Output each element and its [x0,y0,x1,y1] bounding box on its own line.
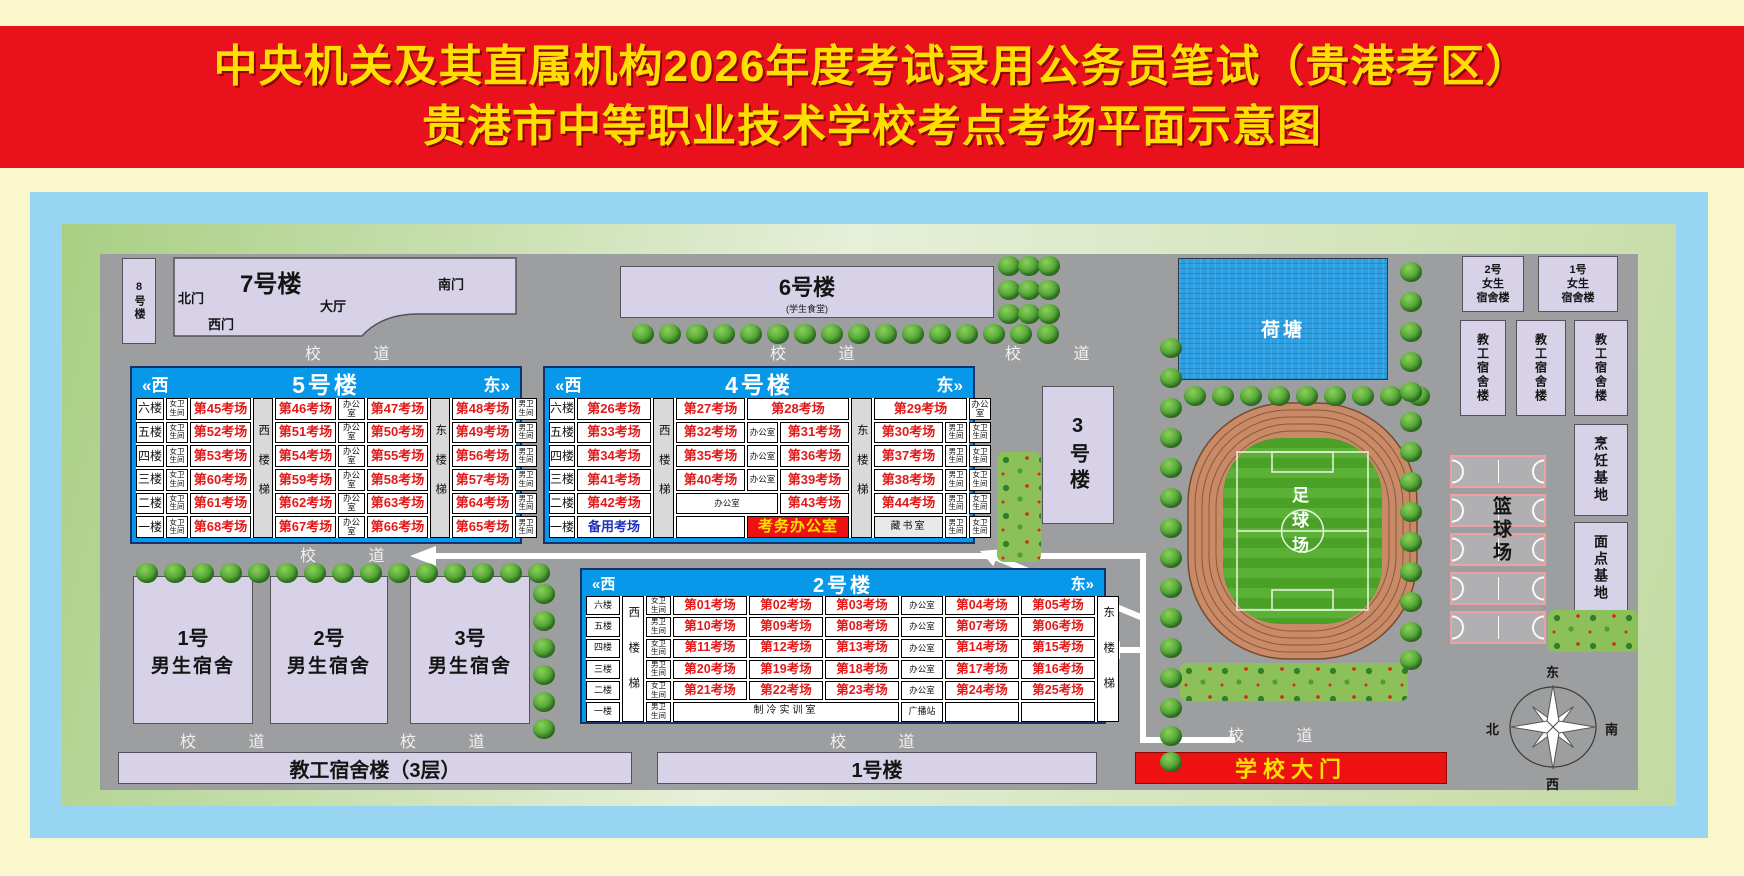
tree-icon [794,324,816,344]
b5-cell-room: 第66考场 [367,516,428,538]
b4-cell-room: 第37考场 [874,445,943,467]
b2-cell-room: 第22考场 [749,681,823,700]
b2-cell-floor: 六楼 [586,596,620,615]
tree-icon [983,324,1005,344]
tree-icon [388,563,410,583]
tree-icon [1400,622,1422,642]
tree-icon [1018,280,1040,300]
road-label: 校 道 [180,728,288,752]
building-4-name: 4号楼 [725,366,793,400]
building-5-name: 5号楼 [292,366,360,400]
b2-cell-room: 第11考场 [673,639,747,658]
b2-cell-room: 第10考场 [673,617,747,636]
b5-cell-room: 第61考场 [190,493,251,515]
title-line-2: 贵港市中等职业技术学校考点考场平面示意图 [0,97,1744,157]
b2-cell-floor: 二楼 [586,681,620,700]
tree-icon [767,324,789,344]
tree-icon [1160,726,1182,746]
tree-icon [1400,592,1422,612]
b4-cell-room: 第38考场 [874,469,943,491]
tree-icon [740,324,762,344]
building-1-bar: 1号楼 [657,752,1097,784]
building-2-grid: 西楼梯东楼梯六楼女卫生间第01考场第02考场第03考场办公室第04考场第05考场… [586,596,1100,722]
b5-cell-wc: 女卫生间 [166,422,188,444]
building-6: 6号楼 (学生食堂) [620,266,994,318]
road-label: 校 道 [770,340,878,364]
female-dorm-1: 1号 女生 宿舍楼 [1538,256,1618,312]
b2-cell-room: 第16考场 [1021,660,1095,679]
b2-cell-room: 第24考场 [945,681,1019,700]
b2-cell-room: 第08考场 [825,617,899,636]
b5-cell-floor: 五楼 [136,422,164,444]
b4-cell-office: 办公室 [747,469,778,491]
b5-cell-room: 第68考场 [190,516,251,538]
b4-cell-floor: 五楼 [549,422,575,444]
tree-icon [1380,386,1402,406]
b4-cell-floor: 四楼 [549,445,575,467]
east-marker: 东» [937,371,963,396]
b2-cell-room: 第09考场 [749,617,823,636]
b4-cell-room: 第33考场 [577,422,651,444]
b5-cell-floor: 四楼 [136,445,164,467]
b4-cell-room: 第32考场 [676,422,745,444]
female-dorm-line2: 女生 [1482,277,1504,291]
tree-icon [1296,386,1318,406]
compass-east-label: 东 [1546,662,1559,681]
title-line-1: 中央机关及其直属机构2026年度考试录用公务员笔试（贵港考区） [0,37,1744,97]
tree-icon [1010,324,1032,344]
b5-cell-wc: 男卫生间 [515,445,537,467]
tree-icon [1240,386,1262,406]
building-7-label: 7号楼 [240,264,301,299]
tree-icon [220,563,242,583]
tree-icon [533,584,555,604]
b4-cell-reserve: 备用考场 [577,516,651,538]
b4-cell-room: 第41考场 [577,469,651,491]
b5-cell-room: 第60考场 [190,469,251,491]
tree-icon [533,638,555,658]
tree-icon [1160,668,1182,688]
tree-icon [998,256,1020,276]
female-dorm-2-no: 2号 [1484,263,1501,277]
b4-cell-room: 第44考场 [874,493,943,515]
building-7-hall: 大厅 [320,296,346,315]
b5-cell-room: 第56考场 [452,445,513,467]
b4-cell-wc: 男卫生间 [945,445,967,467]
tree-icon [248,563,270,583]
tree-icon [686,324,708,344]
west-marker: «西 [555,371,581,396]
building-7-north-gate: 北门 [178,288,204,307]
b4-cell-wc: 男卫生间 [945,493,967,515]
b4-cell-room: 第40考场 [676,469,745,491]
basketball-court [1450,455,1546,488]
building-6-label: 6号楼 [779,270,835,302]
b2-cell-wc: 男卫生间 [646,702,671,721]
b2-cell-floor: 五楼 [586,617,620,636]
b2-cell-office: 办公室 [901,681,943,700]
b5-stair-west: 西楼梯 [253,398,273,538]
b2-cell-floor: 一楼 [586,702,620,721]
tree-icon [929,324,951,344]
b5-cell-floor: 三楼 [136,469,164,491]
school-gate: 学校大门 [1135,752,1447,784]
tree-icon [276,563,298,583]
male-dorm-3: 3号 男生宿舍 [410,576,530,724]
b2-cell-room: 第13考场 [825,639,899,658]
compass-north-label: 北 [1486,719,1499,738]
teacher-dorm-bar: 教工宿舍楼（3层） [118,752,632,784]
tree-icon [1018,256,1040,276]
female-dorm-line3: 宿舍楼 [1562,291,1595,305]
b5-cell-office: 办公室 [338,422,365,444]
female-dorm-2: 2号 女生 宿舍楼 [1462,256,1524,312]
tree-icon [632,324,654,344]
tree-icon [1160,488,1182,508]
building-5-header: «西 5号楼 东» [132,368,520,398]
b4-cell-room: 第36考场 [780,445,849,467]
b2-cell-room: 第05考场 [1021,596,1095,615]
b4-cell-room: 第30考场 [874,422,943,444]
b4-cell-room: 第34考场 [577,445,651,467]
b5-cell-room: 第64考场 [452,493,513,515]
tree-icon [1400,352,1422,372]
tree-icon [713,324,735,344]
b2-cell-room: 第25考场 [1021,681,1095,700]
male-dorm-label: 男生宿舍 [151,651,235,678]
road-label: 校 道 [305,340,413,364]
building-4-header: «西 4号楼 东» [545,368,973,398]
basketball-court-label: 篮球场 [1487,496,1514,565]
pastry-base: 面点基地 [1574,522,1628,614]
b2-cell-wc: 女卫生间 [646,596,671,615]
tree-icon [1160,608,1182,628]
b2-cell-wc: 女卫生间 [646,681,671,700]
tree-icon [528,563,550,583]
tree-icon [1160,578,1182,598]
b5-cell-room: 第62考场 [275,493,336,515]
tree-icon [1160,338,1182,358]
b4-cell-blank [676,516,745,538]
female-dorm-1-no: 1号 [1569,263,1586,277]
b2-cell-room: 第07考场 [945,617,1019,636]
b4-cell-office: 办公室 [676,493,778,515]
female-dorm-line2: 女生 [1567,277,1589,291]
tree-icon [956,324,978,344]
b5-cell-wc: 男卫生间 [515,493,537,515]
b2-cell-blank [945,702,1019,721]
b4-cell-office: 办公室 [747,445,778,467]
staff-dorm-2: 教工宿舍楼 [1516,320,1566,416]
tree-icon [1400,442,1422,462]
basketball-court [1450,572,1546,605]
b5-cell-room: 第63考场 [367,493,428,515]
b4-cell-wc: 女卫生间 [969,516,991,538]
b2-cell-office: 办公室 [901,639,943,658]
b2-cell-room: 第18考场 [825,660,899,679]
b5-cell-office: 办公室 [338,493,365,515]
road-label: 校 道 [400,728,508,752]
b5-cell-wc: 男卫生间 [515,398,537,420]
b4-cell-room: 第39考场 [780,469,849,491]
tree-icon [1160,698,1182,718]
b4-cell-room: 第42考场 [577,493,651,515]
flower-hedge [1180,663,1408,701]
tree-icon [1268,386,1290,406]
tree-icon [1038,280,1060,300]
b2-cell-room: 第03考场 [825,596,899,615]
title-banner: 中央机关及其直属机构2026年度考试录用公务员笔试（贵港考区） 贵港市中等职业技… [0,26,1744,168]
b4-cell-floor: 二楼 [549,493,575,515]
staff-dorm-1: 教工宿舍楼 [1460,320,1506,416]
b2-cell-room: 第02考场 [749,596,823,615]
b2-cell-wc: 男卫生间 [646,660,671,679]
b4-cell-floor: 六楼 [549,398,575,420]
b5-cell-room: 第57考场 [452,469,513,491]
b2-stair-east: 东楼梯 [1097,596,1119,722]
road-label: 校 道 [1228,722,1336,746]
b5-cell-wc: 女卫生间 [166,398,188,420]
b2-cell-room: 第01考场 [673,596,747,615]
b4-stair-east: 东楼梯 [851,398,872,538]
staff-dorm-3: 教工宿舍楼 [1574,320,1628,416]
b5-cell-room: 第51考场 [275,422,336,444]
building-4-table: «西 4号楼 东» 西楼梯东楼梯六楼第26考场第27考场第28考场第29考场办公… [543,366,975,544]
b2-cell-room: 第17考场 [945,660,1019,679]
tree-icon [1184,386,1206,406]
b2-cell-room: 第04考场 [945,596,1019,615]
b2-cell-office: 办公室 [901,617,943,636]
b5-cell-room: 第58考场 [367,469,428,491]
b4-cell-kaowu: 考务办公室 [747,516,849,538]
tree-icon [1160,398,1182,418]
football-field-label: 足球场 [1286,486,1311,561]
tree-icon [1160,518,1182,538]
tree-icon [998,304,1020,324]
building-7-west-gate: 西门 [208,314,234,333]
compass-south-label: 南 [1605,719,1618,738]
b4-cell-wc: 女卫生间 [969,445,991,467]
b2-cell-room: 第20考场 [673,660,747,679]
building-8: 8号楼 [122,258,156,344]
flower-hedge [1548,610,1638,652]
b5-cell-wc: 女卫生间 [166,516,188,538]
b2-stair-west: 西楼梯 [622,596,644,722]
b5-cell-room: 第65考场 [452,516,513,538]
b4-cell-room: 第27考场 [676,398,745,420]
b4-cell-library: 藏书室 [874,516,943,538]
compass-west-label: 西 [1546,774,1559,793]
b2-cell-blank [1021,702,1095,721]
lotus-pond: 荷塘 [1178,258,1388,380]
male-dorm-1: 1号 男生宿舍 [133,576,253,724]
b2-cell-room: 第23考场 [825,681,899,700]
east-marker: 东» [1071,573,1094,594]
b2-cell-office: 办公室 [901,660,943,679]
b4-cell-wc: 男卫生间 [945,516,967,538]
b5-cell-room: 第47考场 [367,398,428,420]
b2-cell-lab: 制冷实训室 [673,702,899,721]
campus-map: 中央机关及其直属机构2026年度考试录用公务员笔试（贵港考区） 贵港市中等职业技… [0,0,1744,876]
tree-icon [1400,562,1422,582]
lotus-pond-label: 荷塘 [1261,315,1305,342]
b5-cell-office: 办公室 [338,398,365,420]
b4-cell-room: 第35考场 [676,445,745,467]
tree-icon [1160,368,1182,388]
male-dorm-3-no: 3号 [454,622,485,651]
building-2-name: 2号楼 [813,569,873,598]
b5-cell-office: 办公室 [338,516,365,538]
b5-cell-wc: 男卫生间 [515,422,537,444]
b4-cell-wc: 女卫生间 [969,469,991,491]
b5-cell-room: 第45考场 [190,398,251,420]
b5-cell-wc: 女卫生间 [166,445,188,467]
tree-icon [1400,292,1422,312]
b4-cell-room: 第29考场 [874,398,967,420]
b5-cell-room: 第48考场 [452,398,513,420]
b4-cell-room: 第28考场 [747,398,849,420]
tree-icon [1400,532,1422,552]
tree-icon [416,563,438,583]
basketball-court [1450,611,1546,644]
tree-icon [332,563,354,583]
building-6-note: (学生食堂) [786,302,828,315]
b5-cell-room: 第53考场 [190,445,251,467]
west-marker: «西 [592,573,615,594]
tree-icon [848,324,870,344]
tree-icon [1400,502,1422,522]
tree-icon [1400,412,1422,432]
tree-icon [1400,472,1422,492]
tree-icon [1160,458,1182,478]
road-label: 校 道 [830,728,938,752]
b5-cell-room: 第59考场 [275,469,336,491]
b4-cell-wc: 男卫生间 [945,422,967,444]
tree-icon [192,563,214,583]
b5-cell-room: 第54考场 [275,445,336,467]
tree-icon [533,665,555,685]
male-dorm-1-no: 1号 [177,622,208,651]
tree-icon [998,280,1020,300]
b5-cell-wc: 女卫生间 [166,493,188,515]
tree-icon [659,324,681,344]
building-2-table: «西 2号楼 东» 西楼梯东楼梯六楼女卫生间第01考场第02考场第03考场办公室… [580,568,1106,724]
b5-cell-room: 第50考场 [367,422,428,444]
b4-cell-floor: 一楼 [549,516,575,538]
b5-cell-floor: 六楼 [136,398,164,420]
b5-cell-room: 第67考场 [275,516,336,538]
b4-cell-wc: 女卫生间 [969,493,991,515]
east-marker: 东» [484,371,510,396]
b2-cell-office: 办公室 [901,596,943,615]
b4-cell-floor: 三楼 [549,469,575,491]
b5-cell-wc: 女卫生间 [166,469,188,491]
b4-stair-west: 西楼梯 [653,398,674,538]
b2-cell-room: 第21考场 [673,681,747,700]
b4-cell-wc: 女卫生间 [969,422,991,444]
b4-cell-room: 第26考场 [577,398,651,420]
b2-cell-room: 第06考场 [1021,617,1095,636]
b4-cell-wc: 男卫生间 [945,469,967,491]
b5-cell-office: 办公室 [338,469,365,491]
b4-cell-office: 办公室 [747,422,778,444]
tree-icon [1038,304,1060,324]
b5-cell-room: 第52考场 [190,422,251,444]
building-3: 3号楼 [1042,386,1114,524]
tree-icon [360,563,382,583]
tree-icon [533,719,555,739]
building-5-table: «西 5号楼 东» 西楼梯东楼梯六楼女卫生间第45考场第46考场办公室第47考场… [130,366,522,544]
b2-cell-room: 第14考场 [945,639,1019,658]
tree-icon [1160,752,1182,772]
b2-cell-room: 第12考场 [749,639,823,658]
tree-icon [875,324,897,344]
b5-cell-floor: 二楼 [136,493,164,515]
tree-icon [1160,638,1182,658]
tree-icon [136,563,158,583]
male-dorm-2: 2号 男生宿舍 [270,576,388,724]
tree-icon [1352,386,1374,406]
building-5-grid: 西楼梯东楼梯六楼女卫生间第45考场第46考场办公室第47考场第48考场男卫生间五… [136,398,516,538]
tree-icon [1324,386,1346,406]
tree-icon [164,563,186,583]
b2-cell-floor: 三楼 [586,660,620,679]
b5-cell-room: 第49考场 [452,422,513,444]
flower-hedge [997,452,1041,562]
b2-cell-wc: 男卫生间 [646,617,671,636]
tree-icon [902,324,924,344]
b4-cell-room: 第31考场 [780,422,849,444]
tree-icon [1400,650,1422,670]
tree-icon [1212,386,1234,406]
b4-cell-room: 第43考场 [780,493,849,515]
tree-icon [304,563,326,583]
tree-icon [1037,324,1059,344]
cooking-base: 烹饪基地 [1574,424,1628,516]
tree-icon [444,563,466,583]
building-2-header: «西 2号楼 东» [582,570,1104,596]
female-dorm-line3: 宿舍楼 [1477,291,1510,305]
tree-icon [1018,304,1040,324]
b5-cell-wc: 男卫生间 [515,516,537,538]
west-marker: «西 [142,371,168,396]
tree-icon [472,563,494,583]
tree-icon [1400,262,1422,282]
b2-cell-wc: 女卫生间 [646,639,671,658]
b5-stair-east: 东楼梯 [430,398,450,538]
tree-icon [500,563,522,583]
tree-icon [533,692,555,712]
b2-cell-floor: 四楼 [586,639,620,658]
b2-cell-room: 第15考场 [1021,639,1095,658]
b5-cell-room: 第55考场 [367,445,428,467]
tree-icon [821,324,843,344]
b5-cell-office: 办公室 [338,445,365,467]
b5-cell-room: 第46考场 [275,398,336,420]
b2-cell-radio: 广播站 [901,702,943,721]
tree-icon [1038,256,1060,276]
b2-cell-room: 第19考场 [749,660,823,679]
tree-icon [533,611,555,631]
b5-cell-floor: 一楼 [136,516,164,538]
tree-icon [1160,428,1182,448]
male-dorm-label: 男生宿舍 [428,651,512,678]
b4-cell-office: 办公室 [969,398,991,420]
building-4-grid: 西楼梯东楼梯六楼第26考场第27考场第28考场第29考场办公室五楼第33考场第3… [549,398,969,538]
tree-icon [1400,322,1422,342]
male-dorm-label: 男生宿舍 [287,651,371,678]
tree-icon [1400,382,1422,402]
